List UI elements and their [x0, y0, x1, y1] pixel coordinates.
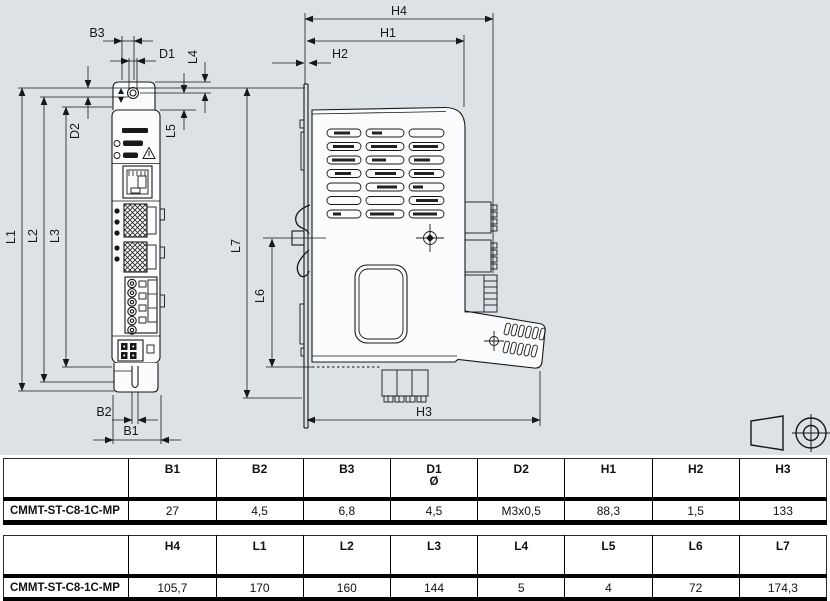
- dim-label-l4: L4: [186, 50, 200, 64]
- datasheet-page: B3 D1 L4 D2 L5 L1 L2 L3 B2 B1 H4 H1 H2 L…: [0, 0, 830, 601]
- column-header: B2: [216, 459, 303, 500]
- value-cell: 144: [390, 576, 477, 600]
- dim-label-d1: D1: [159, 47, 175, 61]
- value-cell: 5: [478, 576, 565, 600]
- column-header: D1Ø: [390, 459, 477, 500]
- dim-label-h4: H4: [391, 4, 407, 18]
- table-row: CMMT-ST-C8-1C-MP 105,7 170 160 144 5 4 7…: [4, 576, 827, 600]
- column-header: B1: [129, 459, 216, 500]
- model-name: CMMT-ST-C8-1C-MP: [4, 576, 129, 600]
- header-empty: [4, 459, 129, 500]
- column-header: L7: [739, 536, 826, 577]
- vent-slots: [327, 129, 444, 218]
- value-cell: 170: [216, 576, 303, 600]
- value-cell: 27: [129, 499, 216, 523]
- column-header: H4: [129, 536, 216, 577]
- dim-label-l1: L1: [4, 230, 18, 244]
- dim-label-d2: D2: [68, 123, 82, 139]
- dim-label-l2: L2: [26, 229, 40, 243]
- value-cell: 160: [303, 576, 390, 600]
- value-cell: 4,5: [216, 499, 303, 523]
- column-header: L2: [303, 536, 390, 577]
- header-empty: [4, 536, 129, 577]
- dim-label-b3: B3: [89, 26, 104, 40]
- table-header-row: H4 L1 L2 L3 L4 L5 L6 L7: [4, 536, 827, 577]
- dim-label-l6: L6: [253, 289, 267, 303]
- dim-label-h2: H2: [332, 47, 348, 61]
- column-header: H2: [652, 459, 739, 500]
- dim-label-l7: L7: [229, 239, 243, 253]
- dimensional-drawing: B3 D1 L4 D2 L5 L1 L2 L3 B2 B1 H4 H1 H2 L…: [0, 0, 830, 455]
- dim-label-h1: H1: [380, 26, 396, 40]
- value-cell: 1,5: [652, 499, 739, 523]
- column-header: L1: [216, 536, 303, 577]
- value-cell: 133: [739, 499, 826, 523]
- dim-label-b2: B2: [96, 405, 111, 419]
- dim-label-h3: H3: [416, 405, 432, 419]
- value-cell: 4: [565, 576, 652, 600]
- column-header: L6: [652, 536, 739, 577]
- value-cell: M3x0,5: [478, 499, 565, 523]
- column-header: L3: [390, 536, 477, 577]
- dimension-table-b-d-h: B1 B2 B3 D1Ø D2 H1 H2 H3 CMMT-ST-C8-1C-M…: [3, 458, 827, 525]
- column-header: L4: [478, 536, 565, 577]
- dim-label-l5: L5: [164, 124, 178, 138]
- diameter-symbol: Ø: [393, 476, 475, 489]
- value-cell: 105,7: [129, 576, 216, 600]
- column-header: L5: [565, 536, 652, 577]
- value-cell: 72: [652, 576, 739, 600]
- value-cell: 174,3: [739, 576, 826, 600]
- column-header: B3: [303, 459, 390, 500]
- table-row: CMMT-ST-C8-1C-MP 27 4,5 6,8 4,5 M3x0,5 8…: [4, 499, 827, 523]
- value-cell: 4,5: [390, 499, 477, 523]
- value-cell: 6,8: [303, 499, 390, 523]
- dim-label-l3: L3: [48, 229, 62, 243]
- model-name: CMMT-ST-C8-1C-MP: [4, 499, 129, 523]
- dimension-table-h4-l: H4 L1 L2 L3 L4 L5 L6 L7 CMMT-ST-C8-1C-MP…: [3, 535, 827, 601]
- table-header-row: B1 B2 B3 D1Ø D2 H1 H2 H3: [4, 459, 827, 500]
- dim-label-b1: B1: [123, 424, 138, 438]
- column-header: H1: [565, 459, 652, 500]
- value-cell: 88,3: [565, 499, 652, 523]
- column-header: H3: [739, 459, 826, 500]
- column-header: D2: [478, 459, 565, 500]
